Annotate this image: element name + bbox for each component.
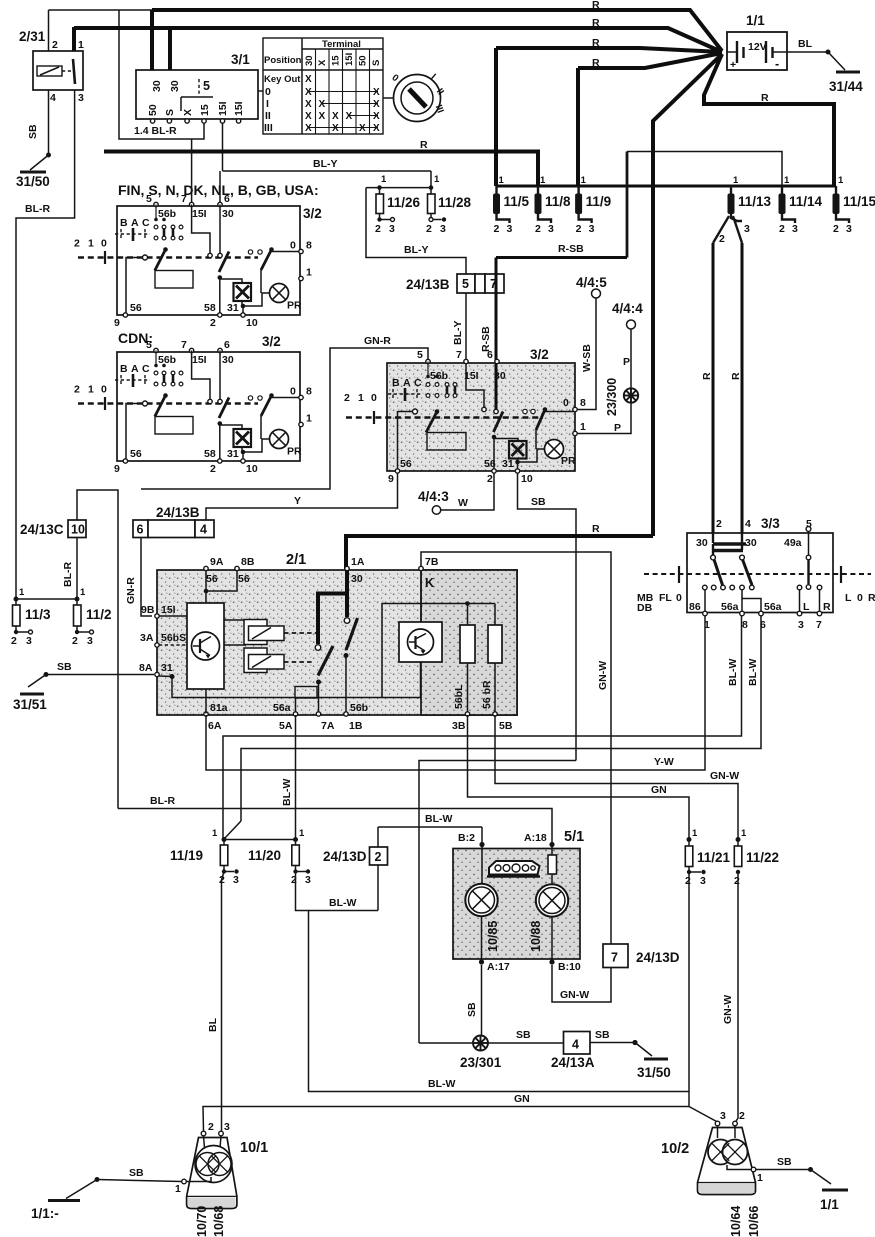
svg-text:BL-Y: BL-Y (313, 158, 338, 170)
svg-text:30: 30 (745, 537, 757, 549)
svg-text:1: 1 (757, 1172, 763, 1184)
svg-text:10/64: 10/64 (729, 1206, 743, 1237)
svg-text:R: R (592, 523, 600, 535)
svg-text:BL-W: BL-W (329, 897, 356, 909)
svg-text:86: 86 (689, 601, 701, 613)
svg-text:3: 3 (87, 635, 93, 647)
svg-text:15: 15 (331, 55, 342, 66)
svg-text:30: 30 (696, 537, 708, 549)
svg-text:SB: SB (466, 1002, 478, 1017)
svg-text:7: 7 (816, 619, 822, 631)
svg-text:BL-W: BL-W (425, 813, 452, 825)
svg-text:X: X (305, 87, 312, 98)
svg-text:2: 2 (375, 850, 382, 864)
svg-text:Y-W: Y-W (654, 756, 674, 768)
svg-text:1: 1 (733, 175, 739, 186)
svg-text:56: 56 (130, 302, 142, 314)
svg-text:PR: PR (287, 300, 302, 312)
svg-text:X: X (373, 111, 380, 122)
svg-text:3: 3 (389, 223, 395, 235)
svg-text:1: 1 (306, 413, 312, 425)
svg-text:7A: 7A (321, 720, 335, 732)
svg-text:23/300: 23/300 (605, 378, 619, 416)
svg-text:10: 10 (246, 317, 258, 329)
svg-text:R: R (592, 37, 600, 49)
svg-text:SB: SB (777, 1156, 792, 1168)
svg-text:2: 2 (739, 1110, 745, 1122)
svg-text:56b: 56b (158, 208, 176, 220)
svg-text:11/3: 11/3 (25, 607, 51, 622)
svg-text:11/22: 11/22 (746, 850, 779, 865)
svg-text:3: 3 (744, 223, 750, 235)
svg-text:56: 56 (238, 573, 250, 585)
svg-text:10/2: 10/2 (661, 1141, 689, 1157)
svg-text:9A: 9A (210, 556, 224, 568)
svg-text:7: 7 (181, 339, 187, 351)
svg-text:2: 2 (685, 875, 691, 887)
svg-text:Terminal: Terminal (322, 39, 361, 50)
svg-text:PR: PR (287, 446, 302, 458)
svg-text:1.4 BL-R: 1.4 BL-R (134, 125, 177, 137)
svg-text:1: 1 (299, 828, 305, 839)
svg-text:5B: 5B (499, 720, 513, 732)
svg-text:10/85: 10/85 (486, 921, 500, 952)
svg-text:10/66: 10/66 (747, 1206, 761, 1237)
svg-text:SB: SB (531, 496, 546, 508)
svg-text:1: 1 (838, 175, 844, 186)
svg-text:10: 10 (246, 463, 258, 475)
svg-text:1: 1 (381, 174, 387, 185)
svg-text:24/13C: 24/13C (20, 522, 64, 537)
svg-text:1/1:-: 1/1:- (31, 1206, 59, 1221)
svg-text:BL-W: BL-W (428, 1078, 455, 1090)
svg-text:FL: FL (659, 592, 672, 604)
svg-text:56b: 56b (350, 702, 368, 714)
svg-text:1: 1 (499, 175, 505, 186)
svg-text:11/14: 11/14 (789, 194, 823, 209)
svg-text:50: 50 (147, 104, 159, 116)
svg-text:11/2: 11/2 (86, 607, 112, 622)
svg-text:1: 1 (358, 392, 364, 404)
svg-text:4/4:3: 4/4:3 (418, 489, 449, 504)
svg-text:BL-R: BL-R (150, 795, 175, 807)
svg-text:2: 2 (74, 238, 80, 250)
svg-text:SB: SB (516, 1029, 531, 1041)
svg-text:I: I (266, 98, 269, 110)
svg-text:0: 0 (563, 397, 569, 409)
svg-text:SB: SB (595, 1029, 610, 1041)
svg-text:11/28: 11/28 (438, 195, 472, 210)
svg-text:31/51: 31/51 (13, 697, 47, 712)
svg-text:7: 7 (181, 193, 187, 205)
svg-text:3/2: 3/2 (262, 334, 281, 349)
svg-text:11/19: 11/19 (170, 848, 203, 863)
svg-text:1: 1 (80, 587, 86, 598)
svg-text:1: 1 (78, 39, 84, 51)
svg-text:4: 4 (745, 518, 751, 530)
svg-text:3/2: 3/2 (303, 206, 322, 221)
svg-text:X: X (305, 99, 312, 110)
svg-text:3: 3 (589, 223, 595, 235)
svg-text:0: 0 (676, 592, 682, 604)
svg-text:GN-W: GN-W (710, 770, 739, 782)
svg-text:X: X (332, 123, 339, 134)
svg-text:23/301: 23/301 (460, 1055, 502, 1070)
svg-text:III: III (264, 122, 273, 134)
svg-text:15I: 15I (233, 101, 245, 116)
svg-text:31: 31 (227, 448, 239, 460)
svg-text:7: 7 (456, 349, 462, 361)
svg-text:1: 1 (580, 421, 586, 433)
svg-text:B: B (120, 363, 128, 375)
svg-text:56bL: 56bL (453, 684, 465, 709)
svg-text:B: B (120, 217, 128, 229)
svg-text:56a: 56a (721, 601, 739, 613)
svg-text:4/4:4: 4/4:4 (612, 301, 643, 316)
svg-text:3: 3 (26, 635, 32, 647)
svg-text:2: 2 (487, 473, 493, 485)
svg-text:11/21: 11/21 (697, 850, 731, 865)
svg-text:R-SB: R-SB (558, 243, 584, 255)
svg-text:R: R (592, 57, 600, 69)
svg-text:Key Out: Key Out (264, 74, 301, 85)
svg-text:3: 3 (507, 223, 513, 235)
svg-text:31: 31 (227, 302, 239, 314)
svg-text:GN-R: GN-R (125, 577, 137, 604)
svg-text:15I: 15I (161, 604, 176, 616)
svg-text:11/8: 11/8 (545, 194, 571, 209)
svg-text:7B: 7B (425, 556, 439, 568)
svg-text:+: + (730, 59, 736, 71)
svg-text:A: A (131, 363, 139, 375)
svg-text:SB: SB (129, 1167, 144, 1179)
svg-text:3: 3 (305, 874, 311, 886)
svg-text:BL-R: BL-R (25, 203, 50, 215)
svg-text:50: 50 (358, 55, 369, 66)
svg-text:3: 3 (224, 1121, 230, 1133)
svg-text:0: 0 (101, 238, 107, 250)
svg-text:X: X (373, 99, 380, 110)
svg-text:W: W (458, 497, 468, 509)
svg-text:BL-W: BL-W (281, 779, 293, 806)
svg-text:C: C (414, 377, 422, 389)
svg-text:2: 2 (11, 635, 17, 647)
svg-text:15I: 15I (217, 101, 229, 116)
svg-text:12V: 12V (748, 41, 767, 53)
svg-text:X: X (319, 111, 326, 122)
svg-text:1: 1 (88, 238, 94, 250)
svg-text:4: 4 (200, 523, 207, 537)
svg-text:9B: 9B (141, 604, 155, 616)
svg-text:3: 3 (440, 223, 446, 235)
svg-text:49a: 49a (784, 537, 802, 549)
svg-text:5: 5 (203, 79, 210, 93)
svg-text:6: 6 (760, 619, 766, 631)
svg-text:1A: 1A (351, 556, 365, 568)
svg-text:5: 5 (462, 277, 469, 291)
svg-text:1: 1 (704, 619, 710, 631)
svg-text:1: 1 (784, 175, 790, 186)
svg-text:30: 30 (351, 573, 363, 585)
svg-text:2: 2 (576, 223, 582, 235)
svg-text:11/9: 11/9 (586, 194, 612, 209)
svg-text:C: C (142, 363, 150, 375)
svg-text:BL-W: BL-W (727, 659, 739, 686)
svg-text:3: 3 (798, 619, 804, 631)
svg-text:2/1: 2/1 (286, 552, 306, 568)
svg-text:5A: 5A (279, 720, 293, 732)
svg-text:56b: 56b (158, 354, 176, 366)
svg-text:15: 15 (199, 104, 211, 116)
svg-text:8: 8 (306, 240, 312, 252)
svg-text:2: 2 (52, 39, 58, 51)
svg-text:GN: GN (651, 784, 667, 796)
svg-text:L: L (803, 601, 810, 613)
svg-text:0: 0 (101, 384, 107, 396)
svg-text:1/1: 1/1 (820, 1197, 839, 1212)
svg-text:30: 30 (222, 208, 234, 220)
svg-text:56: 56 (206, 573, 218, 585)
svg-text:2: 2 (426, 223, 432, 235)
svg-text:30: 30 (304, 55, 315, 66)
svg-text:56: 56 (130, 448, 142, 460)
svg-text:A: A (131, 217, 139, 229)
svg-text:SB: SB (57, 661, 72, 673)
svg-text:P: P (614, 422, 621, 434)
svg-text:X: X (317, 59, 328, 66)
svg-text:3/3: 3/3 (761, 516, 780, 531)
svg-text:R: R (761, 92, 769, 104)
svg-text:0: 0 (265, 86, 271, 98)
svg-text:10: 10 (71, 523, 85, 537)
svg-text:K: K (425, 576, 434, 590)
svg-text:6: 6 (224, 339, 230, 351)
svg-text:5/1: 5/1 (564, 829, 584, 845)
svg-text:R: R (730, 372, 742, 380)
svg-text:8A: 8A (139, 662, 153, 674)
svg-text:10/1: 10/1 (240, 1140, 268, 1156)
svg-text:10/70: 10/70 (195, 1206, 209, 1237)
svg-text:56: 56 (400, 458, 412, 470)
svg-text:6: 6 (224, 193, 230, 205)
svg-text:R: R (868, 592, 875, 604)
svg-text:56a: 56a (764, 601, 782, 613)
svg-text:X: X (332, 111, 339, 122)
svg-text:5: 5 (146, 339, 152, 351)
svg-text:5: 5 (417, 349, 423, 361)
svg-text:B: B (392, 377, 400, 389)
svg-text:1: 1 (88, 384, 94, 396)
svg-text:1: 1 (692, 828, 698, 839)
svg-text:B:2: B:2 (458, 832, 475, 844)
svg-text:3: 3 (792, 223, 798, 235)
svg-text:1: 1 (434, 174, 440, 185)
svg-text:1: 1 (581, 175, 587, 186)
svg-text:R: R (592, 0, 600, 11)
svg-text:PR: PR (561, 455, 576, 467)
svg-text:7: 7 (611, 951, 618, 965)
svg-text:1: 1 (19, 587, 25, 598)
svg-text:4: 4 (50, 92, 56, 104)
svg-text:BL-Y: BL-Y (452, 321, 464, 346)
svg-text:0: 0 (857, 592, 863, 604)
svg-text:11/5: 11/5 (504, 194, 530, 209)
svg-text:31/50: 31/50 (637, 1065, 671, 1080)
svg-text:11/15: 11/15 (843, 194, 875, 209)
svg-text:11/26: 11/26 (387, 195, 421, 210)
svg-text:1/1: 1/1 (746, 13, 765, 28)
svg-text:3: 3 (720, 1110, 726, 1122)
svg-text:1: 1 (540, 175, 546, 186)
svg-text:24/13D: 24/13D (636, 950, 680, 965)
svg-text:Y: Y (294, 495, 301, 507)
svg-text:BL-R: BL-R (62, 562, 74, 587)
svg-text:11/20: 11/20 (248, 848, 281, 863)
svg-text:4/4:5: 4/4:5 (576, 275, 607, 290)
svg-text:2: 2 (716, 518, 722, 530)
svg-text:58: 58 (204, 448, 216, 460)
svg-text:3: 3 (233, 874, 239, 886)
svg-text:30: 30 (151, 80, 163, 92)
svg-text:GN-W: GN-W (560, 989, 589, 1001)
svg-text:X: X (182, 109, 194, 116)
svg-text:S: S (164, 109, 176, 116)
svg-text:31: 31 (161, 662, 173, 674)
svg-text:31/50: 31/50 (16, 174, 50, 189)
svg-text:3/2: 3/2 (530, 347, 549, 362)
svg-text:W-SB: W-SB (581, 344, 593, 372)
svg-text:8B: 8B (241, 556, 255, 568)
svg-text:GN: GN (514, 1093, 530, 1105)
svg-text:DB: DB (637, 602, 653, 614)
svg-text:6: 6 (487, 349, 493, 361)
svg-text:1B: 1B (349, 720, 363, 732)
svg-text:GN-R: GN-R (364, 335, 391, 347)
svg-text:5: 5 (146, 193, 152, 205)
svg-text:2: 2 (734, 875, 740, 887)
svg-text:X: X (305, 74, 312, 85)
svg-text:2: 2 (210, 317, 216, 329)
svg-text:1: 1 (306, 267, 312, 279)
svg-text:0: 0 (371, 392, 377, 404)
svg-text:3: 3 (846, 223, 852, 235)
svg-text:II: II (265, 110, 271, 122)
svg-text:BL-W: BL-W (747, 659, 759, 686)
svg-text:31: 31 (502, 458, 514, 470)
svg-text:X: X (319, 99, 326, 110)
svg-text:9: 9 (114, 317, 120, 329)
svg-text:56b: 56b (430, 370, 448, 382)
svg-text:3B: 3B (452, 720, 466, 732)
svg-text:R: R (592, 17, 600, 29)
svg-text:2: 2 (833, 223, 839, 235)
svg-text:X: X (305, 123, 312, 134)
svg-text:0: 0 (290, 386, 296, 398)
svg-text:15I: 15I (192, 354, 207, 366)
svg-text:3/1: 3/1 (231, 52, 250, 67)
svg-text:R: R (701, 372, 713, 380)
svg-text:24/13B: 24/13B (156, 505, 200, 520)
svg-text:X: X (346, 111, 353, 122)
svg-text:-: - (775, 57, 779, 71)
svg-text:30: 30 (494, 370, 506, 382)
svg-text:4: 4 (572, 1038, 579, 1052)
svg-text:11/13: 11/13 (738, 194, 772, 209)
svg-text:GN-W: GN-W (722, 995, 734, 1024)
svg-text:BL: BL (798, 38, 813, 50)
svg-text:X: X (305, 111, 312, 122)
svg-text:2: 2 (72, 635, 78, 647)
svg-text:24/13B: 24/13B (406, 277, 450, 292)
svg-text:15I: 15I (192, 208, 207, 220)
svg-text:1: 1 (212, 828, 218, 839)
svg-text:0: 0 (290, 240, 296, 252)
svg-text:2: 2 (375, 223, 381, 235)
svg-text:3: 3 (548, 223, 554, 235)
svg-text:6: 6 (137, 523, 144, 537)
svg-text:56 bR: 56 bR (481, 680, 493, 709)
svg-text:A:18: A:18 (524, 832, 547, 844)
svg-text:56bS: 56bS (161, 632, 186, 644)
svg-text:2: 2 (779, 223, 785, 235)
svg-text:3: 3 (78, 92, 84, 104)
svg-text:10/88: 10/88 (529, 921, 543, 952)
svg-text:8: 8 (306, 386, 312, 398)
svg-text:15I: 15I (344, 53, 355, 66)
svg-text:2: 2 (494, 223, 500, 235)
svg-text:8: 8 (580, 397, 586, 409)
svg-text:9: 9 (388, 473, 394, 485)
svg-text:10/68: 10/68 (212, 1206, 226, 1237)
svg-text:3: 3 (700, 875, 706, 887)
svg-text:S: S (371, 60, 382, 66)
svg-text:BL: BL (207, 1017, 219, 1032)
svg-text:2: 2 (344, 392, 350, 404)
svg-text:X: X (359, 123, 366, 134)
svg-text:X: X (373, 87, 380, 98)
svg-text:Position: Position (264, 55, 302, 66)
svg-text:1: 1 (175, 1183, 181, 1195)
svg-text:9: 9 (114, 463, 120, 475)
svg-text:30: 30 (222, 354, 234, 366)
svg-text:L: L (845, 592, 852, 604)
svg-text:81a: 81a (210, 702, 228, 714)
svg-text:2: 2 (208, 1121, 214, 1133)
svg-text:56: 56 (484, 458, 496, 470)
svg-text:8: 8 (742, 619, 748, 631)
svg-text:58: 58 (204, 302, 216, 314)
svg-text:31/44: 31/44 (829, 79, 863, 94)
svg-text:BL-Y: BL-Y (404, 244, 429, 256)
svg-text:P: P (623, 356, 630, 368)
svg-text:X: X (373, 123, 380, 134)
svg-text:R: R (420, 139, 428, 151)
svg-text:2: 2 (535, 223, 541, 235)
svg-text:2: 2 (74, 384, 80, 396)
svg-text:2: 2 (210, 463, 216, 475)
svg-text:B:10: B:10 (558, 961, 581, 973)
svg-text:56a: 56a (273, 702, 291, 714)
svg-text:10: 10 (521, 473, 533, 485)
svg-text:GN-W: GN-W (597, 661, 609, 690)
svg-text:6A: 6A (208, 720, 222, 732)
svg-text:A: A (403, 377, 411, 389)
svg-text:A:17: A:17 (487, 961, 510, 973)
svg-text:24/13D: 24/13D (323, 849, 367, 864)
svg-text:C: C (142, 217, 150, 229)
svg-text:2: 2 (719, 233, 725, 245)
svg-text:1: 1 (741, 828, 747, 839)
